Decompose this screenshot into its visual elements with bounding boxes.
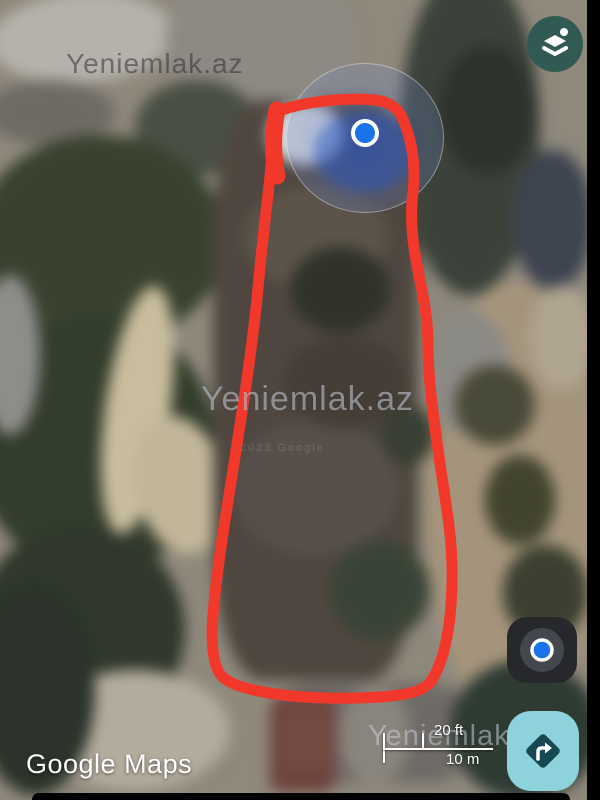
watermark-top: Yeniemlak.az bbox=[66, 48, 244, 80]
terrain-blob bbox=[440, 45, 535, 175]
scale-line bbox=[383, 748, 493, 750]
directions-button[interactable] bbox=[506, 710, 580, 792]
layers-button[interactable] bbox=[524, 13, 586, 75]
scale-imperial-label: 20 ft bbox=[434, 722, 463, 739]
scale-tick bbox=[422, 733, 424, 748]
my-location-icon bbox=[532, 640, 552, 660]
bottom-sheet-edge bbox=[32, 793, 570, 800]
my-location-button[interactable] bbox=[506, 616, 578, 684]
terrain-blob bbox=[530, 285, 595, 390]
right-letterbox bbox=[587, 0, 600, 800]
imagery-attribution: 2023 Google bbox=[240, 442, 325, 454]
maps-app-screen: Yeniemlak.az Yeniemlak.az 2023 Google Ye… bbox=[0, 0, 600, 800]
terrain-blob bbox=[455, 365, 535, 445]
red-roof bbox=[283, 709, 329, 771]
terrain-blob bbox=[513, 150, 593, 290]
tree-blob bbox=[330, 540, 430, 640]
scale-metric-label: 10 m bbox=[446, 751, 479, 768]
tree-blob bbox=[290, 247, 390, 332]
google-maps-logo: Google Maps bbox=[26, 749, 192, 780]
watermark-middle: Yeniemlak.az bbox=[201, 380, 414, 419]
location-accuracy-circle bbox=[286, 63, 444, 213]
map-scale-bar: 20 ft 10 m bbox=[378, 720, 498, 765]
terrain-blob bbox=[485, 455, 555, 545]
terrain-blob bbox=[233, 420, 398, 555]
